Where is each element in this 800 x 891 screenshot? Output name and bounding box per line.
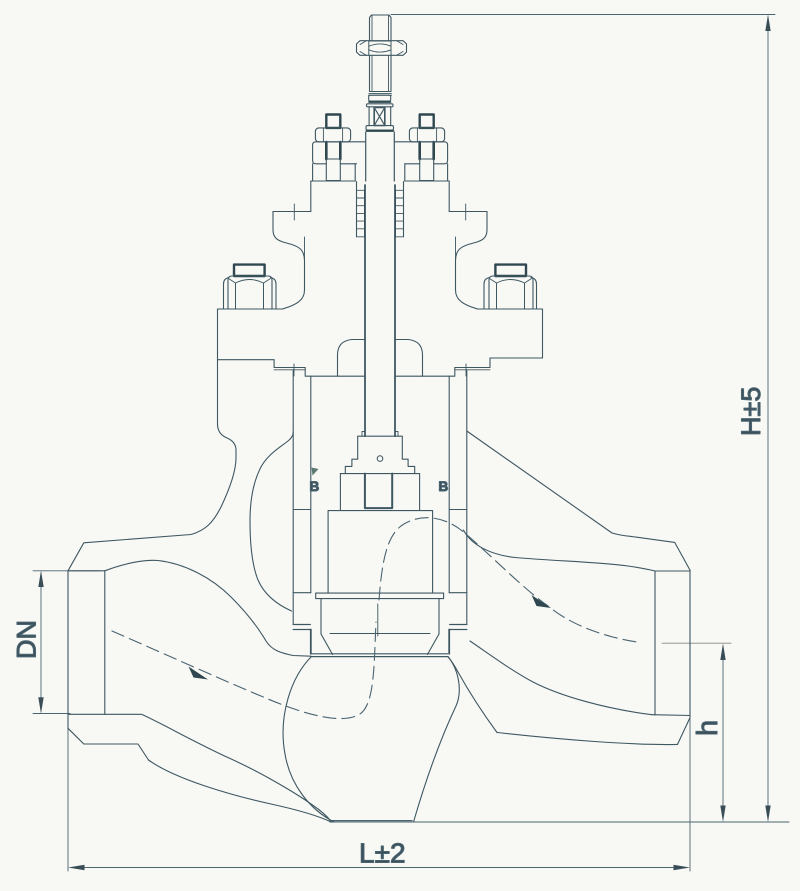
svg-text:h: h bbox=[692, 720, 724, 736]
svg-text:H±5: H±5 bbox=[736, 387, 766, 436]
svg-text:L±2: L±2 bbox=[359, 838, 406, 869]
svg-text:DN: DN bbox=[12, 620, 42, 659]
svg-text:B: B bbox=[439, 479, 449, 494]
svg-text:B: B bbox=[310, 479, 320, 494]
